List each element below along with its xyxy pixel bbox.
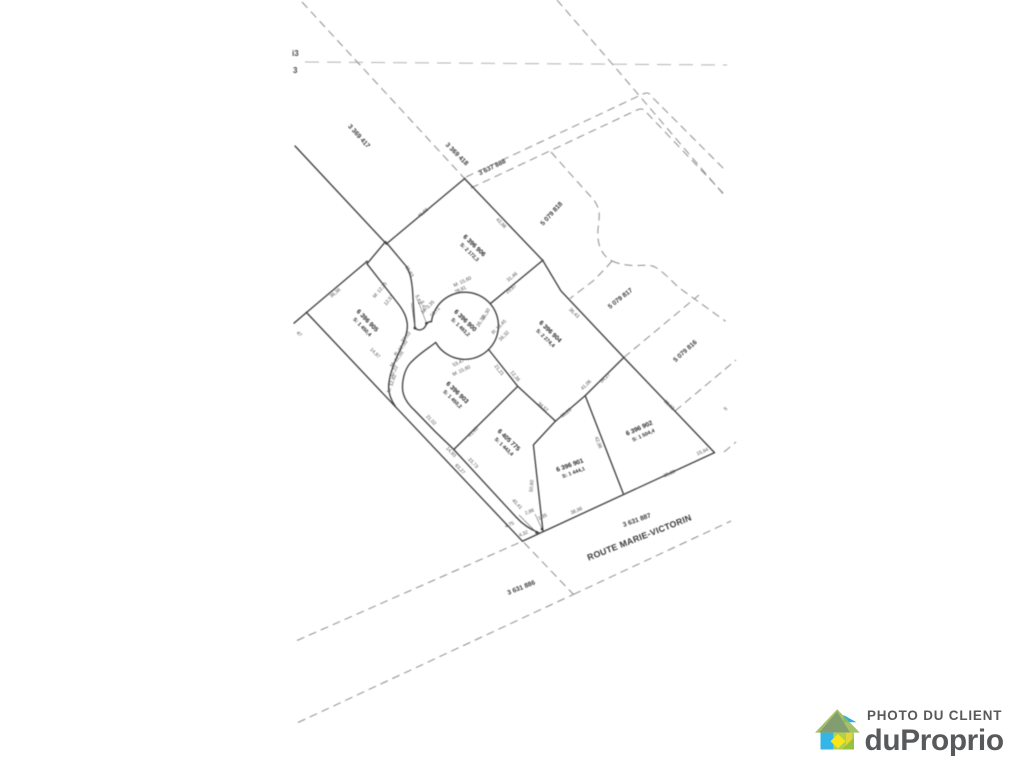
svg-text:PHOTO DU CLIENT: PHOTO DU CLIENT [867,708,1002,723]
svg-text:duProprio: duProprio [865,724,1004,757]
